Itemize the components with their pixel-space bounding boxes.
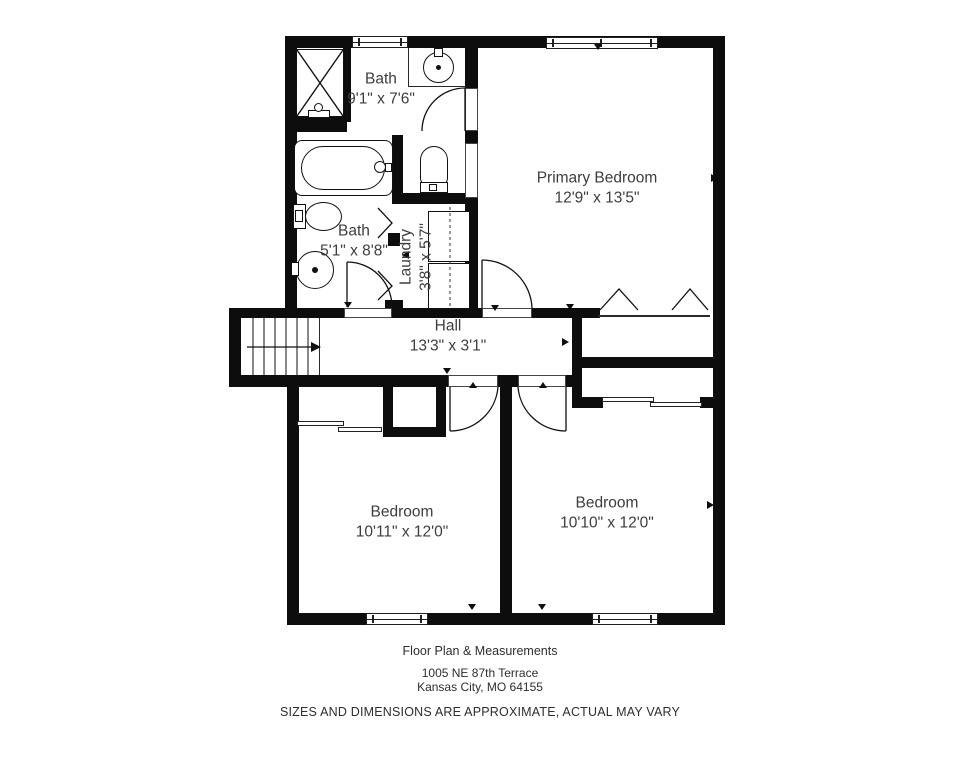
window-mullion xyxy=(353,42,407,43)
footer-disclaimer: SIZES AND DIMENSIONS ARE APPROXIMATE, AC… xyxy=(0,705,960,719)
window-frame-tick xyxy=(400,38,402,46)
room-name: Bath xyxy=(320,222,388,242)
wall-tub-right xyxy=(392,135,403,200)
plan-footer: Floor Plan & Measurements 1005 NE 87th T… xyxy=(0,644,960,719)
stair-edge-line xyxy=(319,318,320,375)
window-bedroom-left xyxy=(366,613,428,625)
footer-address-line2: Kansas City, MO 64155 xyxy=(0,681,960,695)
vanity-faucet xyxy=(434,48,443,57)
window-frame-tick xyxy=(372,615,374,623)
wall-hall-bottom xyxy=(229,375,448,387)
window-bath xyxy=(352,36,408,48)
window-frame-tick xyxy=(650,615,652,623)
footer-address-line1: 1005 NE 87th Terrace xyxy=(0,667,960,681)
window-frame-tick xyxy=(358,38,360,46)
sink-tap xyxy=(291,262,299,276)
wall-closet-mid xyxy=(572,357,713,368)
room-label-primary-bedroom: Primary Bedroom 12'9" x 13'5" xyxy=(537,169,658,210)
bathtub-spout xyxy=(385,163,392,172)
wall-right xyxy=(713,36,725,625)
floor-plan-page: Bath 9'1" x 7'6" Primary Bedroom 12'9" x… xyxy=(0,0,960,768)
pocket-recess xyxy=(465,143,478,198)
room-name: Bath xyxy=(347,70,415,90)
window-primary-bedroom xyxy=(546,37,658,49)
window-mullion xyxy=(593,619,657,620)
wall-bedroom-divider xyxy=(500,375,512,613)
wall-closet-bottom xyxy=(572,397,603,408)
room-dims: 13'3" x 3'1" xyxy=(410,337,486,357)
wall-hall-top xyxy=(229,308,344,318)
wall-primary-left xyxy=(465,131,478,143)
room-name: Primary Bedroom xyxy=(537,169,658,189)
door-threshold-primary xyxy=(482,308,532,318)
wall-primary-left xyxy=(465,36,478,88)
wall-closetB-bottom xyxy=(383,427,446,437)
toilet-flush-ensuite xyxy=(429,184,437,191)
footer-title: Floor Plan & Measurements xyxy=(0,644,960,658)
door-threshold-ensuite xyxy=(465,88,478,131)
door-swing-ensuite xyxy=(422,88,465,131)
door-swing-bedroom-left xyxy=(450,387,498,431)
window-frame-tick xyxy=(552,39,554,47)
wall-hall-top xyxy=(532,308,600,318)
sliding-door-closet-right xyxy=(602,397,654,402)
window-frame-tick xyxy=(598,615,600,623)
wall-bottom xyxy=(287,613,725,625)
sliding-door-closet-left xyxy=(338,427,382,432)
toilet-flush-hallbath xyxy=(295,210,303,222)
door-threshold-bedroom-left xyxy=(448,375,498,387)
stairs-direction-arrow xyxy=(247,342,321,352)
room-dims: 10'10" x 12'0" xyxy=(560,514,654,534)
window-bedroom-right xyxy=(592,613,658,625)
wall-left-lower xyxy=(287,375,299,613)
room-name: Hall xyxy=(410,317,486,337)
room-dims: 10'11" x 12'0" xyxy=(356,523,448,543)
door-threshold-bedroom-right xyxy=(518,375,566,387)
sliding-door-closet-right xyxy=(650,402,702,407)
room-label-bath-ensuite: Bath 9'1" x 7'6" xyxy=(347,70,415,111)
room-name: Laundry xyxy=(397,223,417,291)
stairs-treads xyxy=(253,318,308,375)
room-dims: 5'1" x 8'8" xyxy=(320,242,388,262)
door-threshold-bath xyxy=(344,308,392,318)
window-frame-tick xyxy=(650,39,652,47)
sink-drain xyxy=(312,267,318,273)
toilet-bowl-ensuite xyxy=(420,146,448,186)
window-frame-tick xyxy=(600,39,602,47)
vanity-drain xyxy=(436,65,441,70)
room-dims: 9'1" x 7'6" xyxy=(347,90,415,110)
window-mullion xyxy=(547,43,657,44)
room-label-bedroom-left: Bedroom 10'11" x 12'0" xyxy=(356,503,448,544)
door-swing-bedroom-right xyxy=(518,387,566,431)
sliding-door-closet-left xyxy=(297,421,344,426)
window-frame-tick xyxy=(420,615,422,623)
window-mullion xyxy=(367,619,427,620)
room-label-bedroom-right: Bedroom 10'10" x 12'0" xyxy=(560,494,654,535)
closet-threshold-line xyxy=(598,315,710,317)
room-label-bath-hall: Bath 5'1" x 8'8" xyxy=(320,222,388,263)
room-dims: 12'9" x 13'5" xyxy=(537,189,658,209)
vanity-edge xyxy=(408,86,466,87)
room-label-hall: Hall 13'3" x 3'1" xyxy=(410,317,486,358)
room-label-laundry: Laundry 3'8" x 5'7" xyxy=(397,223,438,291)
door-swing-primary xyxy=(482,260,532,308)
wall-shower-bottom xyxy=(285,117,347,132)
bathtub-basin xyxy=(301,146,385,190)
room-dims: 3'8" x 5'7" xyxy=(417,223,437,291)
room-name: Bedroom xyxy=(560,494,654,514)
shower-valve-knob xyxy=(314,103,323,112)
room-name: Bedroom xyxy=(356,503,448,523)
bifold-door-primary-closet xyxy=(600,289,708,310)
